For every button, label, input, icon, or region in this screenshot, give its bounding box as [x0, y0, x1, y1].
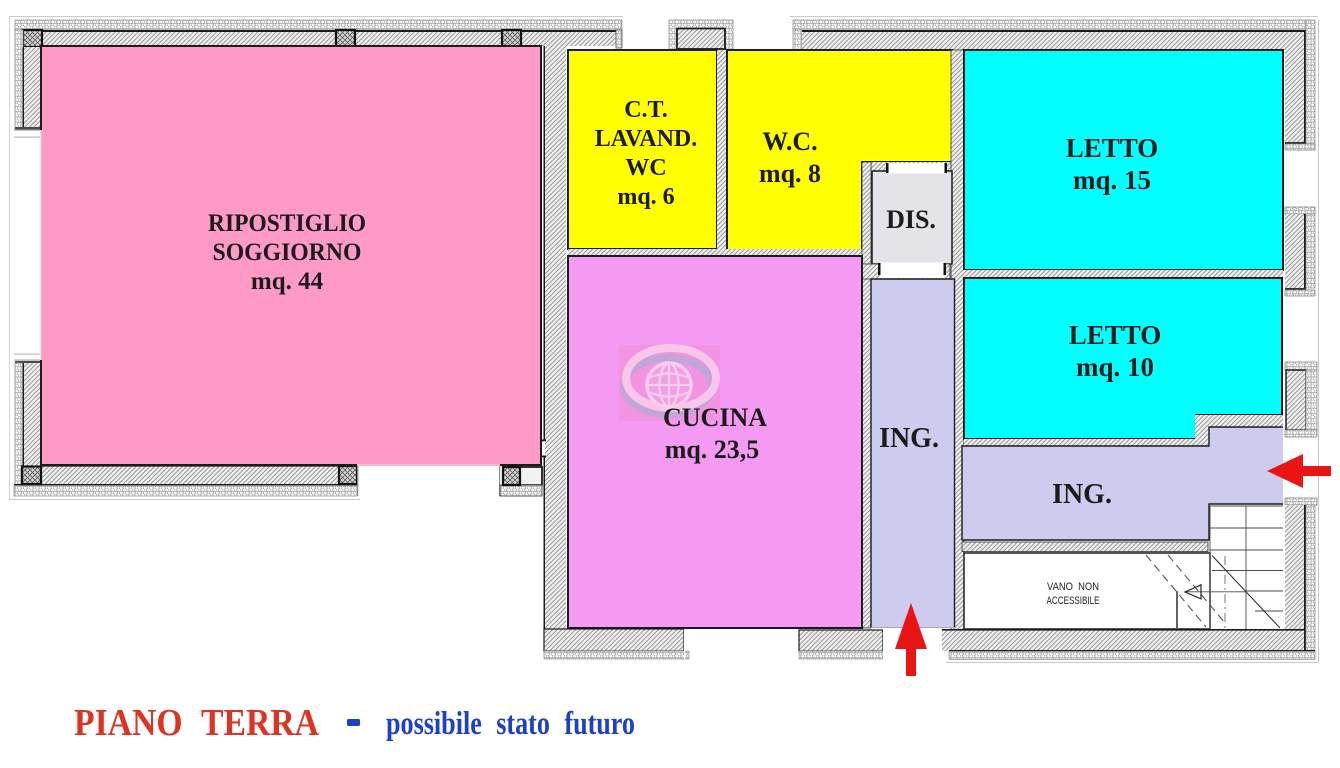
svg-text:possibile stato futuro: possibile stato futuro	[386, 706, 635, 742]
svg-text:CUCINA: CUCINA	[663, 403, 767, 432]
svg-text:DIS.: DIS.	[886, 205, 936, 234]
svg-text:PIANO TERRA: PIANO TERRA	[74, 702, 319, 744]
svg-text:mq. 10: mq. 10	[1076, 352, 1154, 382]
svg-text:LAVAND.: LAVAND.	[595, 126, 697, 152]
svg-text:LETTO: LETTO	[1069, 320, 1162, 350]
svg-text:mq. 15: mq. 15	[1073, 165, 1151, 195]
svg-text:ING.: ING.	[1052, 479, 1112, 510]
svg-text:VANO NON: VANO NON	[1047, 581, 1099, 593]
svg-text:LETTO: LETTO	[1066, 133, 1159, 163]
svg-text:ING.: ING.	[879, 423, 939, 454]
svg-text:mq. 44: mq. 44	[251, 268, 324, 295]
svg-text:ACCESSIBILE: ACCESSIBILE	[1047, 595, 1100, 607]
svg-text:C.T.: C.T.	[624, 97, 668, 123]
svg-text:WC: WC	[625, 155, 666, 181]
svg-text:RIPOSTIGLIO: RIPOSTIGLIO	[208, 210, 366, 237]
svg-text:W.C.: W.C.	[762, 127, 817, 156]
svg-text:SOGGIORNO: SOGGIORNO	[213, 239, 362, 266]
svg-text:mq. 6: mq. 6	[617, 184, 674, 210]
svg-text:mq. 8: mq. 8	[759, 159, 821, 188]
svg-text:mq. 23,5: mq. 23,5	[665, 435, 760, 464]
